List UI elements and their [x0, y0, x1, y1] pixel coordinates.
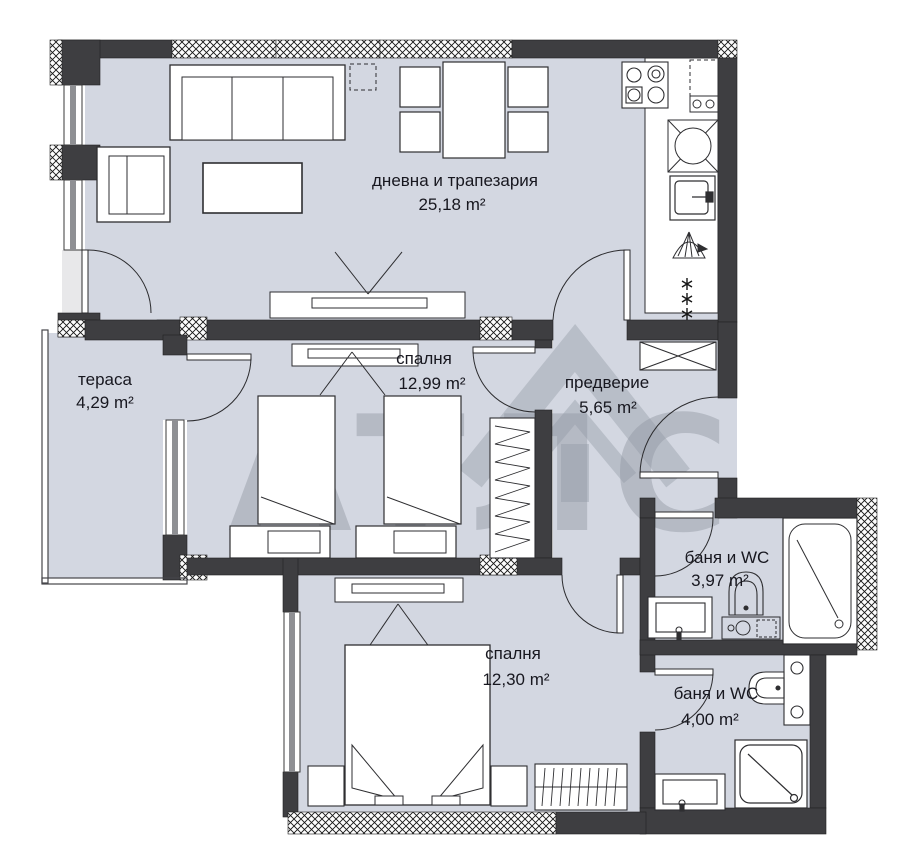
dining-chair: [400, 67, 440, 107]
double-bed: [345, 645, 490, 805]
wall-hatch: [172, 40, 276, 58]
duct-icon: [784, 655, 810, 725]
sofa: [170, 65, 345, 140]
floor-plan-svg: АТЛ С: [0, 0, 915, 861]
bath1-area: 3,97 m²: [691, 571, 749, 590]
stove-icon: [622, 62, 668, 108]
bedroom2-area: 12,30 m²: [482, 670, 549, 689]
floor-plan: АТЛ С: [0, 0, 915, 861]
sink-icon-bath1: [648, 597, 712, 640]
bedroom1-label: спалня: [396, 349, 452, 368]
hallway-area: 5,65 m²: [579, 398, 637, 417]
dining-chair: [400, 112, 440, 152]
bath2-area: 4,00 m²: [681, 710, 739, 729]
bath2-label: баня и WC: [674, 684, 759, 703]
hallway-items: [640, 342, 716, 370]
terrace-area: 4,29 m²: [76, 393, 134, 412]
dining-chair: [508, 112, 548, 152]
coffee-table: [203, 163, 302, 213]
wardrobe-bedroom2: [535, 764, 627, 810]
window-bedroom2: [284, 612, 300, 772]
window-bedroom1-terrace: [166, 420, 184, 535]
wardrobe-bedroom1: [490, 418, 535, 558]
bedroom2-label: спалня: [485, 644, 541, 663]
terrace-label: тераса: [78, 370, 132, 389]
living-label: дневна и трапезария: [372, 171, 538, 190]
dining-chair: [508, 67, 548, 107]
shower-icon: [735, 740, 807, 808]
bath1-label: баня и WC: [685, 548, 770, 567]
bathtub-icon: [783, 518, 857, 644]
corner-sink-icon: [668, 120, 718, 172]
shaft-box: [640, 342, 716, 370]
window-living-2: [64, 180, 82, 250]
bedroom1-area: 12,99 m²: [398, 374, 465, 393]
nightstand: [308, 766, 344, 806]
armchair: [97, 147, 170, 222]
sink-icon-bath2: [655, 774, 725, 811]
nightstand: [491, 766, 527, 806]
dining-table: [443, 62, 505, 158]
window-living-1: [64, 85, 82, 145]
hallway-label: предверие: [565, 373, 649, 392]
living-area: 25,18 m²: [418, 195, 485, 214]
